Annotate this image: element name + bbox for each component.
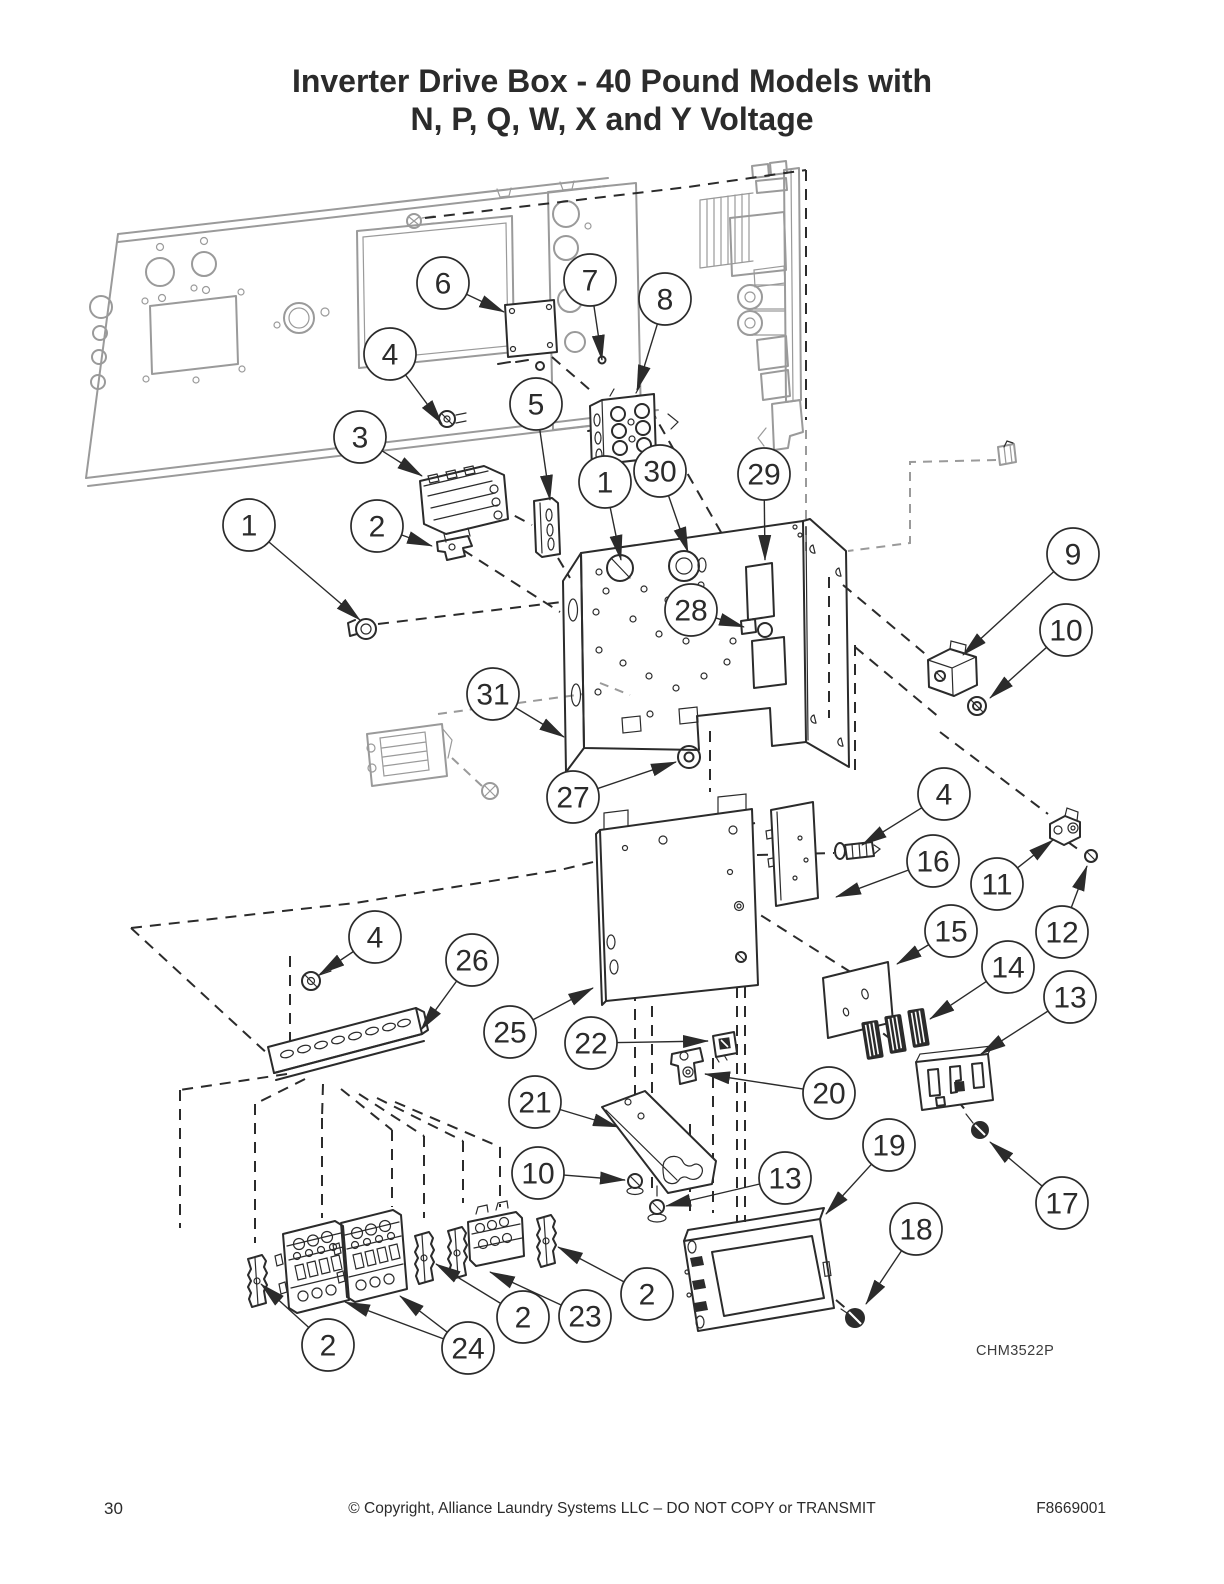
main-mounting-plate-31 [563, 519, 849, 772]
leader-line [963, 572, 1054, 655]
callout-31: 31 [467, 668, 519, 720]
callout-21: 21 [509, 1076, 561, 1128]
callout-5: 5 [510, 378, 562, 430]
callout-number: 30 [643, 456, 676, 489]
contactor-24-a [275, 1221, 349, 1313]
callout-number: 22 [574, 1028, 607, 1061]
bracket-20 [671, 1048, 703, 1084]
callout-number: 15 [934, 916, 967, 949]
callout-number: 21 [518, 1087, 551, 1120]
callout-22: 22 [565, 1017, 617, 1069]
callout-20: 20 [803, 1067, 855, 1119]
leader-line [897, 945, 929, 964]
callout-number: 25 [493, 1017, 526, 1050]
callout-12: 12 [1036, 906, 1088, 958]
callout-28: 28 [665, 584, 717, 636]
leader-line [269, 542, 360, 620]
callout-14: 14 [982, 941, 1034, 993]
contactor-3 [420, 466, 508, 542]
manual-page: Inverter Drive Box - 40 Pound Models wit… [0, 0, 1224, 1584]
callout-24: 24 [442, 1322, 494, 1374]
pcb-16 [766, 802, 818, 906]
callout-13: 13 [759, 1152, 811, 1204]
callout-number: 28 [674, 595, 707, 628]
callout-8: 8 [639, 273, 691, 325]
inverter-drive-assembly [700, 161, 803, 450]
callout-number: 14 [991, 952, 1024, 985]
callout-number: 23 [568, 1301, 601, 1334]
callout-number: 26 [455, 945, 488, 978]
callout-number: 6 [435, 268, 452, 301]
callout-2: 2 [302, 1319, 354, 1371]
callout-7: 7 [564, 254, 616, 306]
clip-22 [713, 1032, 737, 1062]
callout-4: 4 [918, 768, 970, 820]
bracket-21 [602, 1091, 716, 1193]
callout-number: 18 [899, 1214, 932, 1247]
leader-line [400, 1296, 447, 1332]
leader-line [345, 1302, 444, 1339]
callout-number: 3 [352, 422, 369, 455]
callout-27: 27 [547, 771, 599, 823]
callout-number: 2 [515, 1302, 532, 1335]
screw-10-right [968, 697, 986, 715]
leader-line [598, 762, 676, 789]
callout-11: 11 [971, 858, 1023, 910]
callout-3: 3 [334, 411, 386, 463]
leader-line [401, 535, 432, 546]
callout-number: 24 [451, 1333, 484, 1366]
callout-2: 2 [621, 1268, 673, 1320]
bracket-11 [1050, 808, 1080, 845]
din-rail-26 [268, 1008, 428, 1080]
terminal-housing-13 [916, 1046, 993, 1110]
figure-code: CHM3522P [976, 1343, 1054, 1359]
drive-box-19 [684, 1208, 834, 1331]
callout-number: 17 [1045, 1188, 1078, 1221]
aux-contact-clip-2c [448, 1227, 467, 1279]
leader-line [1017, 840, 1053, 868]
leader-line [981, 1011, 1048, 1054]
callout-number: 13 [768, 1163, 801, 1196]
leader-line [862, 808, 922, 845]
callout-23: 23 [559, 1290, 611, 1342]
callout-number: 13 [1053, 982, 1086, 1015]
leader-line [261, 1284, 309, 1328]
callout-number: 27 [556, 782, 589, 815]
leader-line [533, 988, 593, 1020]
callout-number: 5 [528, 389, 545, 422]
grommet-1-left [348, 619, 376, 639]
callout-number: 4 [936, 779, 953, 812]
mounting-clip-2-top [437, 536, 472, 560]
callout-layer: 6784351302912289103127416111215141342625… [223, 254, 1099, 1374]
leader-line [406, 375, 443, 424]
callout-number: 8 [657, 284, 674, 317]
label-plate-15 [823, 962, 893, 1038]
screw-4-top [439, 411, 466, 427]
callout-number: 2 [320, 1330, 337, 1363]
leader-line [866, 1251, 902, 1304]
callout-number: 9 [1065, 539, 1082, 572]
leader-line [382, 451, 422, 476]
screw-17 [966, 1114, 989, 1139]
callout-13: 13 [1044, 971, 1096, 1023]
callout-18: 18 [890, 1203, 942, 1255]
leader-line [320, 952, 353, 975]
callout-number: 19 [872, 1130, 905, 1163]
callout-30: 30 [634, 445, 686, 497]
callout-number: 1 [241, 510, 258, 543]
document-number: F8669001 [1036, 1500, 1106, 1518]
retainer-clip-top-right [998, 441, 1016, 465]
leader-line [826, 1164, 872, 1214]
callout-number: 10 [521, 1158, 554, 1191]
callout-number: 29 [747, 459, 780, 492]
callout-19: 19 [863, 1119, 915, 1171]
leader-line [467, 294, 505, 312]
din-rail-5 [534, 498, 560, 557]
callout-2: 2 [351, 500, 403, 552]
leader-line [558, 1247, 624, 1282]
callout-number: 2 [639, 1279, 656, 1312]
screw-10-bottom [627, 1174, 643, 1195]
callout-6: 6 [417, 257, 469, 309]
callout-10: 10 [1040, 604, 1092, 656]
leader-line [594, 306, 602, 360]
callout-number: 2 [369, 511, 386, 544]
callout-2: 2 [497, 1291, 549, 1343]
control-module-gray [367, 724, 498, 799]
callout-number: 4 [382, 339, 399, 372]
callout-number: 4 [367, 922, 384, 955]
screw-12 [1085, 850, 1097, 862]
leader-line [990, 1142, 1042, 1186]
leader-line [540, 430, 550, 500]
leader-line [564, 1175, 625, 1180]
aux-contact-clip-2a [248, 1255, 267, 1307]
callout-16: 16 [907, 835, 959, 887]
contactor-23 [468, 1201, 524, 1266]
callout-15: 15 [925, 905, 977, 957]
callout-25: 25 [484, 1006, 536, 1058]
callout-10: 10 [512, 1147, 564, 1199]
callout-17: 17 [1036, 1177, 1088, 1229]
callout-number: 1 [597, 467, 614, 500]
leader-line [617, 1041, 708, 1043]
leader-line [990, 647, 1047, 698]
callout-1: 1 [579, 456, 631, 508]
callout-4: 4 [349, 911, 401, 963]
cover-plate-6 [505, 300, 557, 357]
callout-29: 29 [738, 448, 790, 500]
screw-18 [841, 1308, 865, 1328]
callout-1: 1 [223, 499, 275, 551]
aux-contact-clip-2d [537, 1215, 556, 1267]
leader-line [515, 708, 564, 738]
callout-number: 31 [476, 679, 509, 712]
contactor-24-b [333, 1210, 407, 1302]
leader-line [1071, 866, 1087, 908]
callout-number: 7 [582, 265, 599, 298]
inner-mounting-plate-25 [596, 794, 758, 1005]
screw-4-bottom [302, 971, 331, 990]
aux-contact-clip-2b [415, 1232, 434, 1284]
leader-line [436, 1264, 501, 1304]
screw-13-bottom [648, 1186, 666, 1222]
callout-number: 11 [981, 869, 1012, 902]
screw-4-right [835, 842, 880, 859]
leader-line [421, 981, 457, 1030]
leader-line [930, 981, 986, 1019]
callout-26: 26 [446, 934, 498, 986]
leader-line [836, 870, 909, 897]
callout-number: 10 [1049, 615, 1082, 648]
leader-line [705, 1074, 803, 1089]
callout-number: 12 [1045, 917, 1078, 950]
leader-line [764, 500, 765, 560]
callout-4: 4 [364, 328, 416, 380]
callout-number: 20 [812, 1078, 845, 1111]
callout-number: 16 [916, 846, 949, 879]
callout-9: 9 [1047, 528, 1099, 580]
